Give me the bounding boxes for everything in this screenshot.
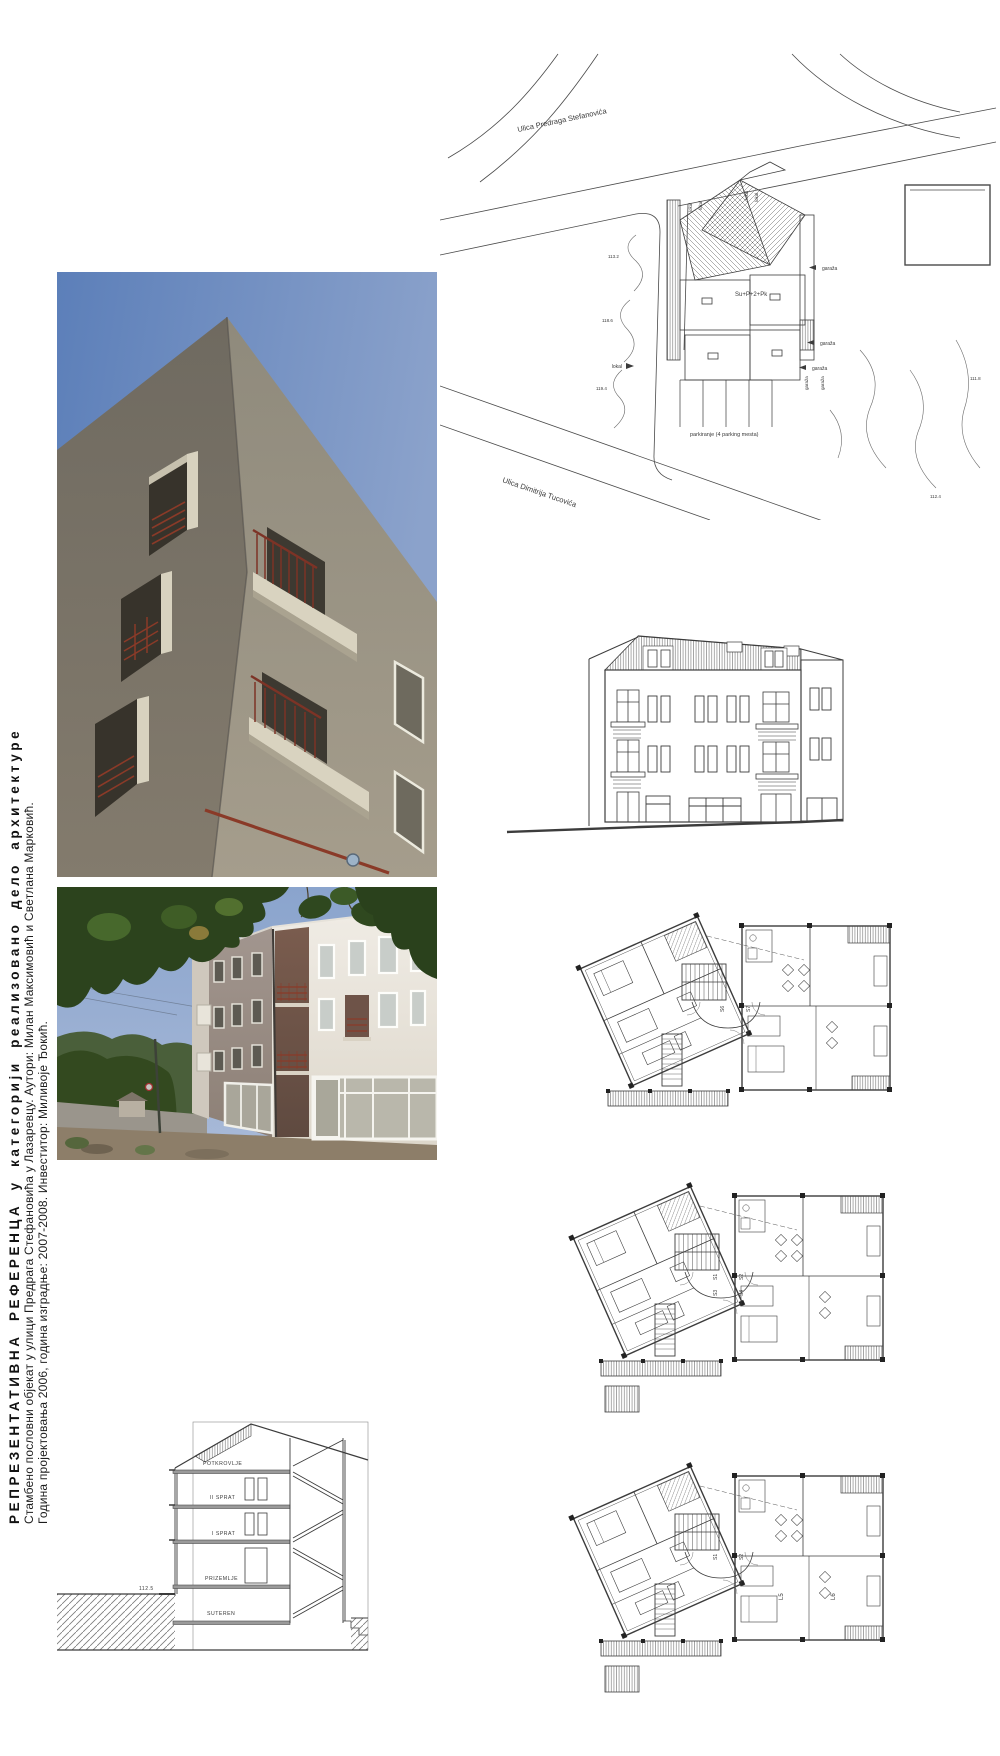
plan2-unit-label-2: S2 (739, 1274, 745, 1280)
site-plan-labels: Ulica Predraga Stefanovića Ulica Dimitri… (501, 106, 981, 509)
contour-label-4: 111.8 (970, 376, 981, 381)
section-label-prizemlje: PRIZEMLJE (205, 1576, 238, 1582)
garaza-label-5: garaža (820, 376, 825, 390)
lokal-label-4: lokal (754, 193, 759, 202)
section-label-suteren: SUTEREN (207, 1611, 235, 1617)
section-svg: POTKROVLJE II SPRAT I SPRAT PRIZEMLJE SU… (55, 1408, 375, 1658)
building-storeys-label: Su+P+2+Pk (735, 292, 768, 298)
contour-label-2: 118.6 (602, 318, 613, 323)
plan2-unit-label-3: S3 (713, 1290, 719, 1296)
lokal-arrow-label: lokal (612, 364, 622, 370)
contour-label-3: 119.4 (596, 386, 607, 391)
lokal-label-1: lokal (688, 203, 693, 212)
lokal-label-2: lokal (698, 201, 703, 210)
contour-label-5: 112.4 (930, 494, 941, 499)
photo-building-street (57, 887, 437, 1160)
plan3-unit-label-3: L5 (779, 1593, 785, 1600)
plan1-unit-label-2: S7 (746, 1006, 752, 1012)
street-label-bottom: Ulica Dimitrija Tucovića (501, 475, 578, 509)
garaza-label-2: garaža (820, 341, 836, 347)
site-plan-drawing: Ulica Predraga Stefanovića Ulica Dimitri… (440, 50, 1000, 520)
portfolio-page: РЕПРЕЗЕНТАТИВНА РЕФЕРЕНЦА у категорији р… (0, 0, 1000, 1756)
photo-building-corner (57, 272, 437, 877)
plan1-unit-label-1: S6 (720, 1006, 726, 1012)
caption-line-years: Година пројектовања 2006, година изградњ… (37, 652, 51, 1524)
plan3-unit-label-2: S2 (739, 1554, 745, 1560)
section-drawing: POTKROVLJE II SPRAT I SPRAT PRIZEMLJE SU… (55, 1408, 375, 1658)
section-label-sprat2: II SPRAT (210, 1495, 236, 1501)
elevation-drawing (505, 560, 845, 835)
street-label-top: Ulica Predraga Stefanovića (517, 106, 609, 134)
elevation-svg (505, 560, 845, 835)
section-level-mark: 112.5 (139, 1586, 154, 1592)
floor-plan-3: S1 S2 L5 L6 (545, 1448, 895, 1698)
parking-label: parkiranje (4 parking mesta) (690, 432, 759, 438)
section-label-sprat1: I SPRAT (212, 1531, 236, 1537)
photo-building-corner-svg (57, 272, 437, 877)
floor-plan-3-svg: S1 S2 L5 L6 (545, 1448, 895, 1698)
section-label-potkrovlje: POTKROVLJE (203, 1461, 242, 1467)
floor-plan-2-svg: S1 S2 S3 S4 (545, 1168, 895, 1418)
garaza-label-4: garaža (804, 376, 809, 390)
site-plan-svg: Ulica Predraga Stefanovića Ulica Dimitri… (440, 50, 1000, 520)
floor-plan-2: S1 S2 S3 S4 (545, 1168, 895, 1418)
floor-plan-1: S6 S7 (552, 898, 902, 1148)
garaza-label-1: garaža (822, 266, 838, 272)
plan2-unit-label-1: S1 (713, 1274, 719, 1280)
plan3-unit-label-4: L6 (831, 1593, 837, 1600)
contour-label-1: 113.2 (608, 254, 619, 259)
reference-title: РЕПРЕЗЕНТАТИВНА РЕФЕРЕНЦА у категорији р… (6, 652, 23, 1524)
floor-plan-1-svg: S6 S7 (552, 898, 902, 1148)
lokal-label-3: lokal (744, 191, 749, 200)
plan3-unit-label-1: S1 (713, 1554, 719, 1560)
photo-building-street-svg (57, 887, 437, 1160)
plan2-unit-label-4: S4 (739, 1290, 745, 1296)
garaza-label-3: garaža (812, 366, 828, 372)
caption-line-project: Стамбено пословни објекат у улици Предра… (23, 652, 37, 1524)
